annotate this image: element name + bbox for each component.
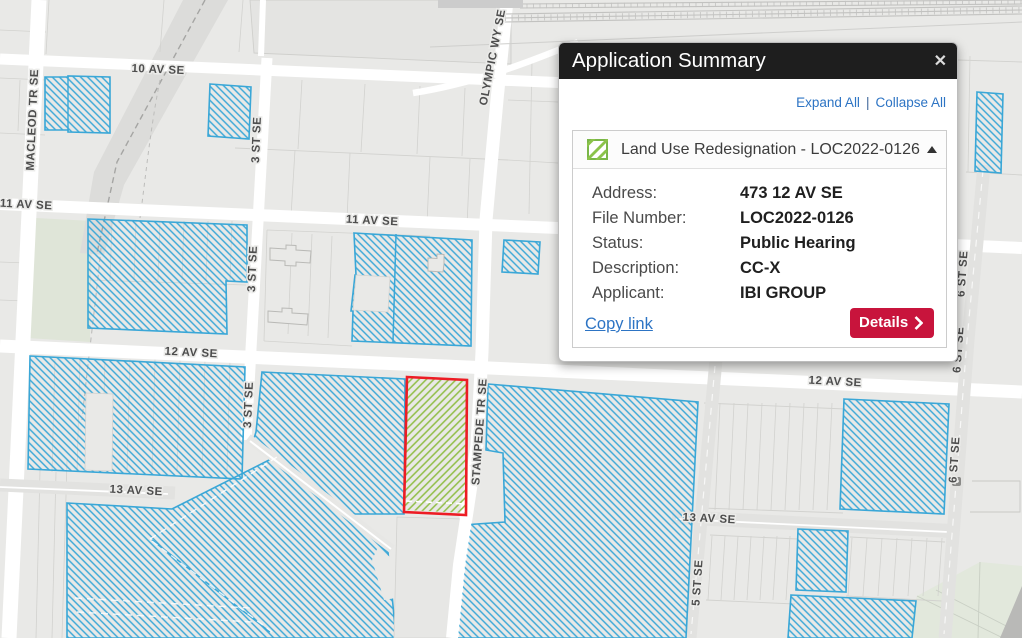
- svg-text:3 ST SE: 3 ST SE: [242, 381, 256, 428]
- svg-text:10 AV SE: 10 AV SE: [131, 63, 185, 77]
- svg-text:3 ST SE: 3 ST SE: [246, 245, 260, 292]
- svg-text:3 ST SE: 3 ST SE: [250, 116, 264, 163]
